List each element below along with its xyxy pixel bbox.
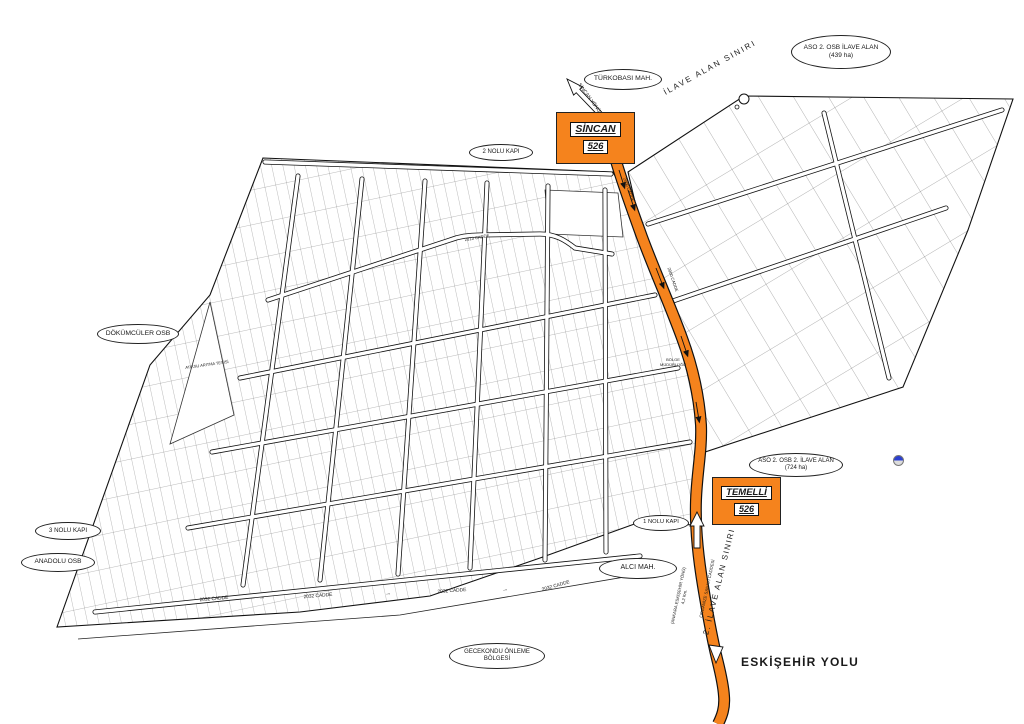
ellipse-text: DÖKÜMCÜLER OSB xyxy=(106,330,171,338)
label-ellipse-aso-osb-ilave-alan-1: ASO 2. OSB İLAVE ALAN (439 ha) xyxy=(791,35,891,69)
label-ellipse-kapi-3: 3 NOLU KAPI xyxy=(35,522,101,540)
label-ellipse-anadolu-osb: ANADOLU OSB xyxy=(21,553,95,572)
route-number: 526 xyxy=(583,140,609,154)
ellipse-text: (724 ha) xyxy=(785,465,807,473)
label-ellipse-alci-mah: ALCI MAH. xyxy=(599,558,677,579)
osb-map: ASO 2. OSB İLAVE ALAN (439 ha) TÜRKOBASI… xyxy=(0,0,1024,724)
small-junction-circle xyxy=(735,105,739,109)
label-ellipse-aso-osb-ilave-alan-2: ASO 2. OSB 2. İLAVE ALAN (724 ha) xyxy=(749,453,843,477)
large-parcel xyxy=(545,190,623,237)
route-name: SİNCAN xyxy=(570,122,620,137)
ellipse-text: ASO 2. OSB 2. İLAVE ALAN xyxy=(758,458,834,466)
ellipse-text: ALCI MAH. xyxy=(620,564,655,573)
ellipse-text: 3 NOLU KAPI xyxy=(49,527,87,535)
ellipse-text: ANADOLU OSB xyxy=(35,558,82,566)
route-name: TEMELLİ xyxy=(721,486,772,500)
label-ellipse-gecekondu-onleme: GECEKONDU ÖNLEME BÖLGESİ xyxy=(449,643,545,669)
label-ellipse-turkobasi-mah: TÜRKOBASI MAH. xyxy=(584,69,662,90)
ellipse-text: 1 NOLU KAPI xyxy=(643,519,679,526)
ellipse-text: BÖLGESİ xyxy=(484,656,510,664)
ellipse-text: ASO 2. OSB İLAVE ALAN xyxy=(804,44,879,52)
route-box-temelli: TEMELLİ 526 xyxy=(712,477,781,525)
map-canvas xyxy=(0,0,1024,724)
label-ellipse-kapi-1: 1 NOLU KAPI xyxy=(633,515,689,531)
label-ellipse-dokumculer-osb: DÖKÜMCÜLER OSB xyxy=(97,324,179,344)
route-box-sincan: SİNCAN 526 xyxy=(556,112,635,164)
label-bolge-mudurlugu: BÖLGE MÜDÜRLÜĞÜ xyxy=(651,358,695,368)
ellipse-text: TÜRKOBASI MAH. xyxy=(594,75,652,83)
label-line: MÜDÜRLÜĞÜ xyxy=(651,363,695,368)
ellipse-text: GECEKONDU ÖNLEME xyxy=(464,649,530,657)
blue-marker-icon xyxy=(893,455,904,466)
label-ellipse-kapi-2: 2 NOLU KAPI xyxy=(469,144,533,161)
roundabout-circle xyxy=(739,94,749,104)
ellipse-text: (439 ha) xyxy=(829,52,853,60)
ellipse-text: 2 NOLU KAPI xyxy=(482,149,519,157)
label-eskisehir-yolu: ESKİŞEHİR YOLU xyxy=(741,655,901,669)
